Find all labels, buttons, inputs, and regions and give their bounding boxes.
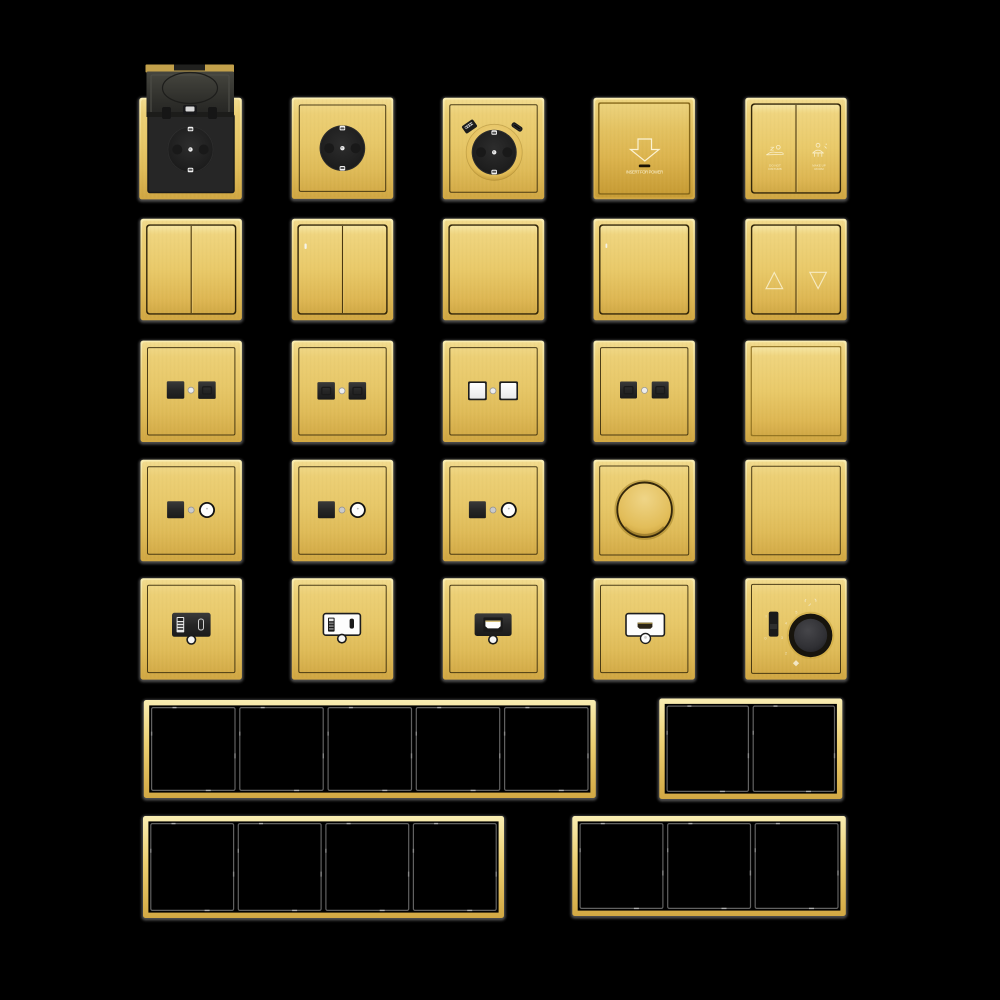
svg-text:INSERT FOR POWER: INSERT FOR POWER xyxy=(626,169,663,174)
svg-text:3: 3 xyxy=(781,636,783,640)
svg-text:5: 5 xyxy=(795,611,797,615)
svg-text:4: 4 xyxy=(785,622,787,626)
svg-text:DISTURB: DISTURB xyxy=(768,167,781,171)
svg-text:I: I xyxy=(765,613,766,618)
svg-text:ROOM: ROOM xyxy=(814,167,824,171)
svg-text:2: 2 xyxy=(785,651,787,655)
